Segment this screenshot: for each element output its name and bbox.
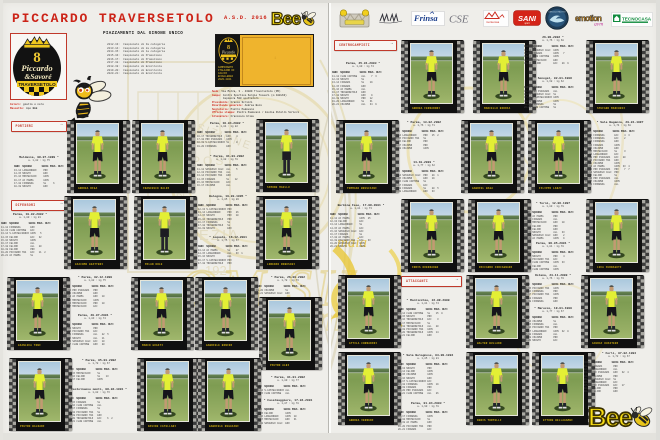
svg-text:Piccardo: Piccardo	[221, 51, 235, 55]
svg-text:SANI: SANI	[518, 14, 537, 23]
svg-text:monterosa: monterosa	[486, 20, 500, 24]
svg-text:CIRCOLO NUOTO: CIRCOLO NUOTO	[549, 12, 566, 14]
svg-text:Bee: Bee	[271, 9, 301, 29]
svg-text:TECNOCASA: TECNOCASA	[622, 17, 651, 22]
svg-text:Frinsa: Frinsa	[413, 13, 438, 23]
svg-text:TRAVERSETOLO: TRAVERSETOLO	[18, 82, 56, 87]
svg-text:&Savoré: &Savoré	[24, 72, 52, 81]
svg-text:gym: gym	[594, 22, 603, 27]
svg-text:sport: sport	[524, 22, 529, 25]
svg-text:CSE: CSE	[449, 14, 469, 26]
svg-text:Bee: Bee	[588, 402, 632, 432]
